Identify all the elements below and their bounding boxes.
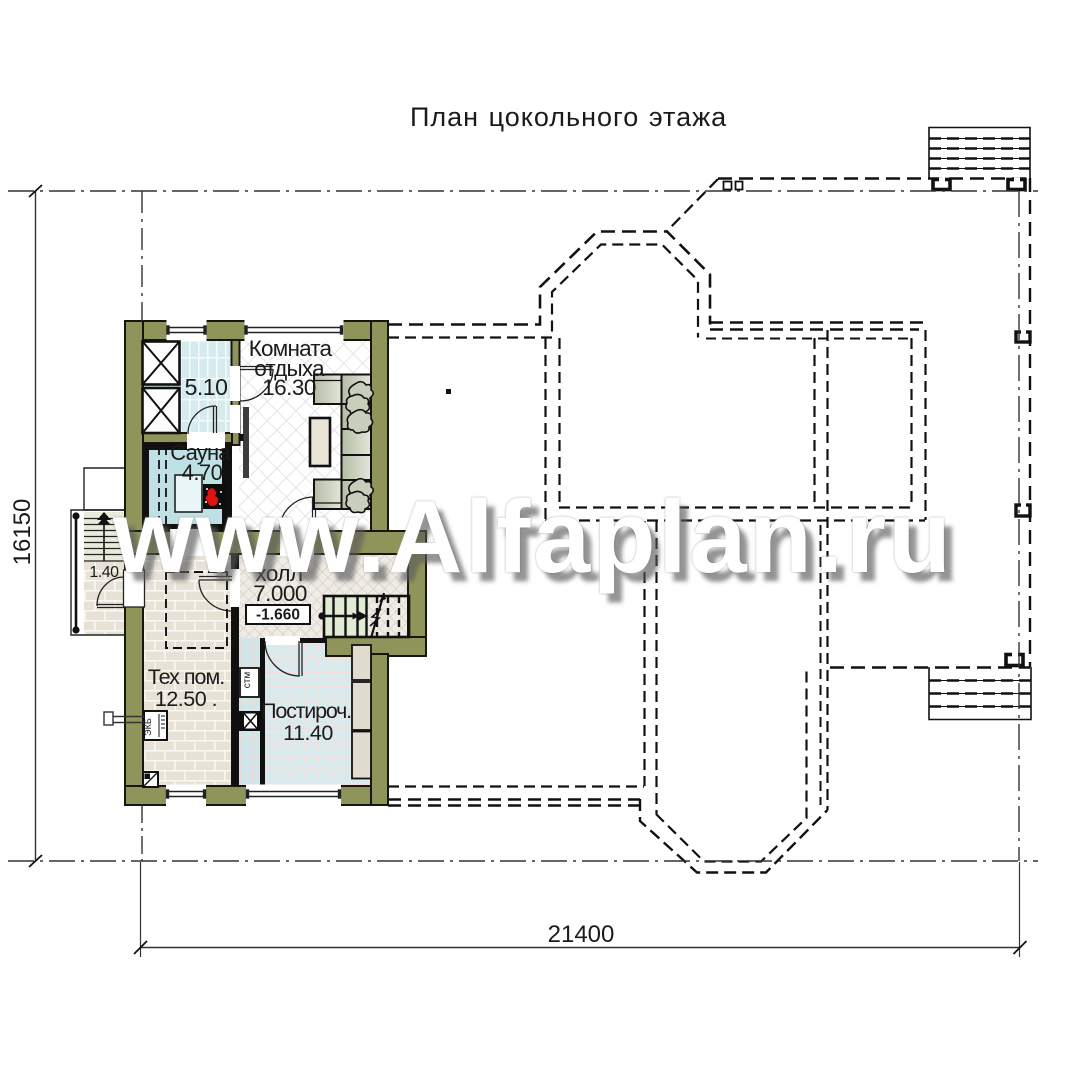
svg-text:-1.660: -1.660 [256, 607, 300, 624]
svg-text:ЭКБ: ЭКБ [143, 718, 153, 736]
svg-text:стм: стм [242, 672, 253, 689]
svg-text:11.40: 11.40 [283, 721, 333, 745]
svg-text:16150: 16150 [9, 499, 36, 566]
svg-text:Постироч.: Постироч. [261, 699, 351, 723]
svg-text:21400: 21400 [548, 921, 615, 948]
svg-text:12.50 .: 12.50 . [155, 687, 217, 711]
svg-text:Тех пом.: Тех пом. [148, 665, 225, 689]
svg-text:16.30: 16.30 [262, 375, 316, 400]
svg-text:5.10: 5.10 [185, 374, 228, 400]
